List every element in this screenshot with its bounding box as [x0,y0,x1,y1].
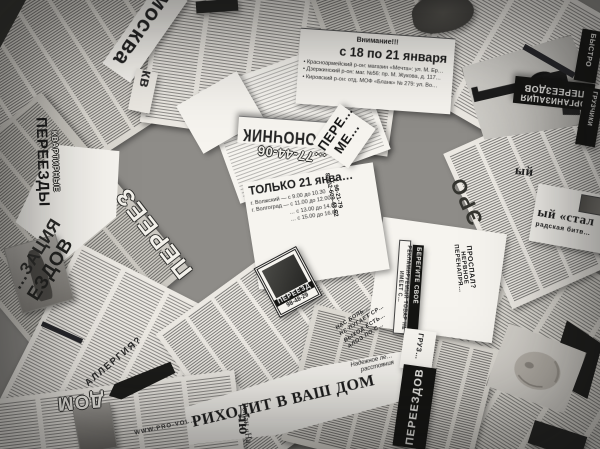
kvartirnye-line2: ПЕРЕЕЗДЫ [32,110,53,215]
dom-upside-text: ДОМ [56,389,105,414]
newspaper-collage-photo: москва кв Внимание!!! с 18 по 21 января … [0,0,600,449]
dom-upside: ДОМ [55,384,105,414]
yi-fragment: ый [514,162,534,180]
beregite-strip-text: БЕРЕГИТЕ СВОЁ [411,247,421,304]
bystro-text: БЫСТРО [584,33,597,68]
kvartirnye-pereezdy: КВАРТИРНЫЕ ПЕРЕЕЗДЫ [14,109,62,214]
kv-fragment-text: кв [135,69,155,90]
attention-flyer: Внимание!!! с 18 по 21 января • Красноар… [296,28,456,115]
gruzchiki-text: ГРУЗЧИКИ [585,91,597,127]
pereezdov-banner-text: ПЕРЕЕЗДОВ [403,368,426,446]
pereezdov-caption-text: ГРУЗ… [413,333,424,361]
lyu-fragment: лю [233,413,251,435]
